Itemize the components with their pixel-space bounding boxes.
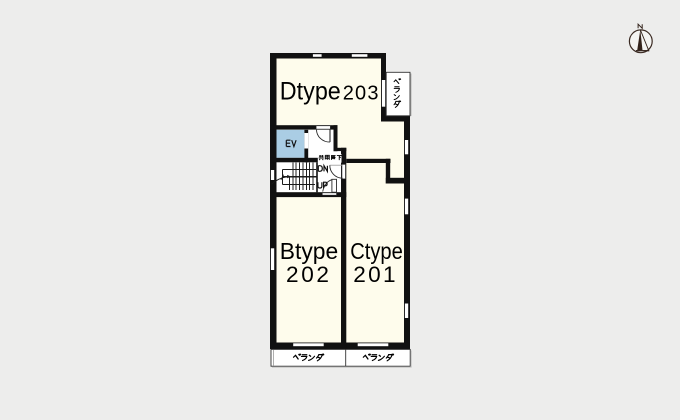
- svg-text:202: 202: [286, 262, 329, 287]
- svg-text:201: 201: [353, 262, 395, 287]
- svg-text:Ctype: Ctype: [350, 238, 403, 264]
- svg-text:Btype: Btype: [280, 238, 338, 264]
- svg-text:Dtype: Dtype: [280, 77, 341, 105]
- svg-text:203: 203: [343, 82, 379, 104]
